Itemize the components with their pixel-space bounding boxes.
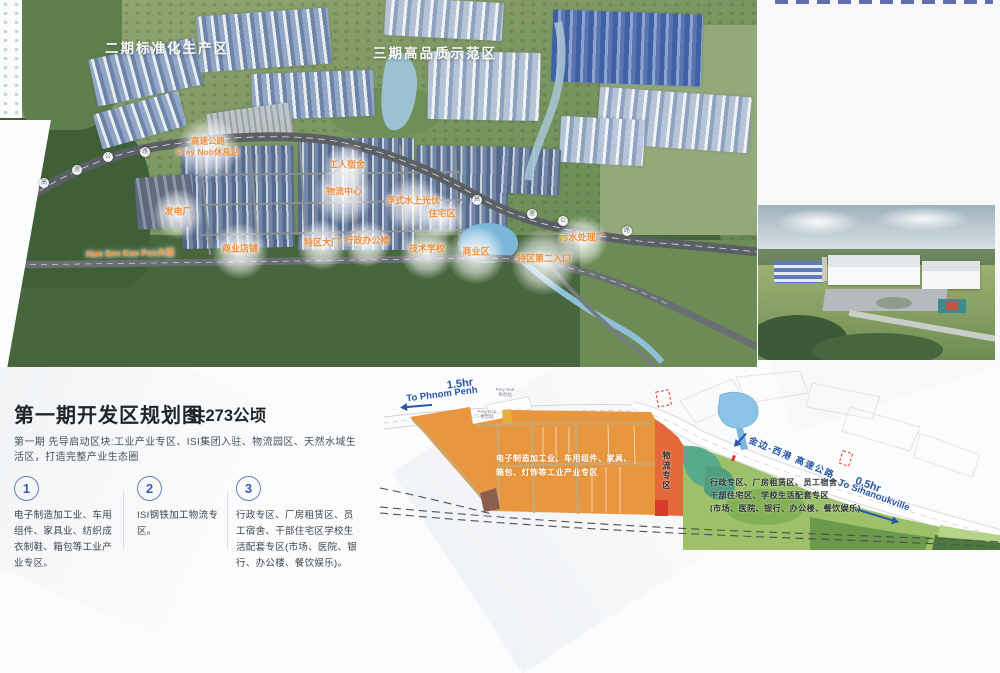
photo-dorm-building	[774, 261, 824, 283]
avenue-road	[8, 258, 757, 347]
rest-stop-marker: Prey Nob 休息站	[488, 387, 522, 398]
zone-label-phase3: 三期高品质示范区	[373, 42, 497, 62]
total-area-label: 共273公顷	[189, 402, 266, 426]
zone-label-phase2: 二期标准化生产区	[105, 37, 229, 57]
photo-foreground-trees	[813, 333, 943, 360]
road-shield: 速	[72, 165, 82, 175]
photo-tower	[822, 257, 827, 281]
photo-cloud	[876, 207, 971, 231]
legend-item-1-text: 电子制造加工业、车用组件、家具业、纺织成衣制鞋、箱包等工业产业专区。	[14, 508, 120, 573]
legend-item-3-text: 行政专区、厂房租赁区、员工宿舍、干部住宅区学校生活配套专区(市场、医院、银行、办…	[236, 508, 362, 573]
legend-item-2: 2 ISI钢铁加工物流专区。	[137, 476, 221, 540]
number-badge-2: 2	[137, 476, 162, 501]
page-title: 第一期开发区规划图	[14, 399, 203, 428]
legend-item-2-text: ISI钢铁加工物流专区。	[137, 508, 221, 540]
number-badge-3: 3	[236, 476, 261, 501]
living-zone-label-line3: (市场、医院、银行、办公楼、餐饮娱乐)	[710, 503, 861, 514]
rest-stop-line2: 休息站	[480, 414, 494, 419]
rest-stop-marker: Prey Nob 休息站	[470, 409, 504, 420]
logistics-zone-label: 物流专区	[661, 451, 672, 489]
number-badge-1: 1	[14, 476, 39, 501]
pond	[381, 50, 417, 130]
red-lot	[655, 500, 668, 516]
poi-label-floating-solar: 浮式水上光伏	[386, 194, 440, 207]
red-dashed-box	[656, 390, 671, 407]
poi-label-worker-dorm: 工人宿舍	[329, 158, 365, 171]
masterplan-rendering: 高 速 公 路 高 速 公 路 二期标准化生产区 三期高品质示范区 高速公路 P…	[0, 0, 757, 367]
river	[528, 22, 562, 180]
avenue-name-label: Hun Sen Kao Pos大道	[86, 246, 174, 260]
poi-label-shops: 商业店铺	[222, 242, 258, 255]
poi-label-commercial: 商业区	[462, 245, 489, 258]
cropped-heading-fragment	[775, 0, 993, 4]
legend-item-3: 3 行政专区、厂房租赁区、员工宿舍、干部住宅区学校生活配套专区(市场、医院、银行…	[236, 476, 362, 573]
rest-stop-line2: 休息站	[498, 392, 512, 397]
poi-label-residential: 住宅区	[428, 207, 455, 220]
road-shield: 公	[103, 152, 113, 162]
road-shield: 路	[140, 147, 150, 157]
poi-label-sewage-plant: 污水处理厂	[559, 231, 604, 244]
road-shield: 公	[558, 216, 568, 226]
industrial-zone-label-line2: 箱包、灯饰等工业产业专区	[496, 467, 598, 478]
red-dashed-box	[839, 451, 853, 466]
column-divider	[123, 492, 124, 548]
intro-subtitle: 第一期 先导启动区块:工业产业专区、ISI集团入驻、物流园区、天然水域生活区，打…	[14, 433, 359, 463]
poi-label-logistics-center: 物流中心	[326, 185, 362, 198]
living-zone-label-line2: 干部住宅区、学校生活配套专区	[710, 490, 829, 501]
poi-label-power-plant: 发电厂	[164, 205, 191, 218]
phase1-plan-diagram: 1.5hr To Phnom Penh Prey Nob 休息站 Prey No…	[380, 367, 1000, 550]
column-divider	[227, 492, 228, 548]
legend-item-1: 1 电子制造加工业、车用组件、家具业、纺织成衣制鞋、箱包等工业产业专区。	[14, 476, 120, 573]
poi-label-rest-stop: Prey Nob休息站	[177, 146, 240, 158]
industrial-zone-label-line1: 电子制造加工业、车用组件、家具、	[496, 453, 632, 464]
factory-aerial-photo	[758, 205, 995, 360]
photo-cloud	[776, 209, 860, 235]
road-shield: 路	[622, 226, 632, 236]
poi-label-technical-school: 技术学校	[409, 242, 445, 255]
poi-label-gate: 特区大门	[304, 236, 340, 249]
road-shield: 高	[39, 178, 49, 188]
photo-basketball-court	[938, 299, 966, 313]
road-shield: 速	[527, 209, 537, 219]
poi-label-second-entrance: 特区第二入口	[517, 252, 571, 265]
photo-pond	[876, 297, 912, 309]
plan-pond	[718, 392, 758, 428]
poi-label-admin-office: 行政办公楼	[344, 234, 389, 247]
photo-court-key	[946, 302, 958, 310]
road-shield: 高	[472, 195, 482, 205]
photo-factory-main	[828, 255, 920, 285]
photo-factory-right	[922, 261, 980, 289]
